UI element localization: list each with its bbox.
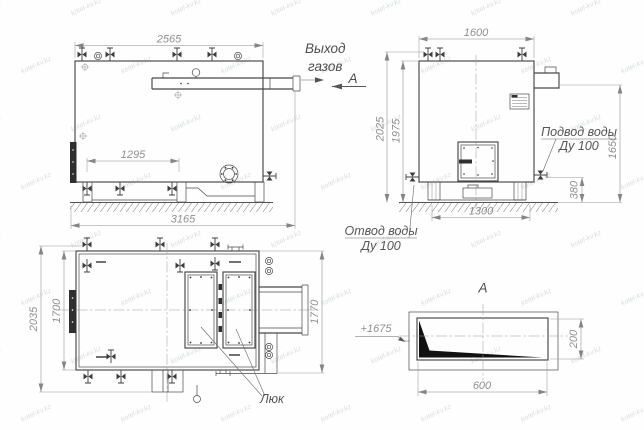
valve-icon: [436, 48, 445, 61]
boiler-body-plan: [76, 251, 259, 370]
elevation-mark: +1675: [355, 323, 410, 342]
flange-port-icon: [265, 267, 272, 274]
valve-icon: [176, 259, 185, 272]
gas-outlet-duct-side: [152, 69, 300, 91]
water-supply-label: Подвод воды Ду 100: [541, 125, 617, 171]
edge-valves-plan: [83, 238, 244, 383]
nameplate: [510, 94, 529, 109]
side-view: 2565 1295 3165 Выход газов А: [70, 34, 366, 230]
boiler-body-side: [75, 61, 263, 182]
flange-port-icon: [265, 257, 272, 264]
gas-outlet-duct-plan: [230, 285, 308, 374]
water-drain-text-2: Ду 100: [359, 239, 401, 253]
front-view: 1600 2025 1975 1650 380: [344, 27, 622, 253]
furnace-door: [458, 142, 498, 181]
flow-arrow-icon: [315, 77, 324, 82]
water-supply-text-1: Подвод воды: [541, 125, 617, 139]
flange-port-icon: [265, 351, 272, 358]
boiler-body-front: [419, 61, 534, 182]
valve-icon: [263, 172, 276, 181]
flange-port-icon: [94, 52, 101, 59]
valve-icon: [117, 370, 126, 383]
water-drain-label: Отвод воды Ду 100: [344, 185, 417, 253]
valve-icon: [156, 238, 165, 251]
center-mark-icon: [174, 91, 182, 99]
section-outer-casing: [409, 312, 558, 370]
dimension-380: 380: [548, 178, 584, 203]
section-width-dim-value: 600: [473, 380, 492, 392]
support-frame-front: [428, 182, 526, 200]
support-frame-side: [83, 182, 264, 202]
section-view: А 200 600 +1675: [355, 281, 584, 397]
water-supply-text-2: Ду 100: [557, 139, 599, 153]
valve-icon: [78, 48, 87, 61]
valve-icon: [84, 370, 93, 383]
flange-port-icon: [234, 52, 241, 59]
valve-icon: [106, 48, 115, 61]
depth-body-dim-value: 1700: [51, 298, 63, 323]
ground-side: [70, 203, 273, 213]
center-mark-icon: [79, 132, 87, 140]
section-mark-value: А: [347, 71, 357, 86]
flue-wedge-profile: [419, 321, 543, 358]
valve-icon: [208, 48, 217, 61]
valve-icon: [168, 370, 177, 383]
height-total-dim-value: 2025: [375, 116, 387, 142]
valve-icon: [83, 238, 92, 251]
depth-total-dim-value: 2035: [28, 306, 40, 332]
plan-view: 2035 1700 1770 Люк: [28, 238, 324, 406]
base-dim-value: 3165: [171, 214, 196, 226]
dimension-200: 200: [550, 319, 584, 359]
height-body-dim-value: 1975: [391, 118, 403, 143]
valve-icon: [211, 257, 220, 270]
dimension-1295: 1295: [87, 149, 179, 172]
base-width-dim-value: 1300: [469, 206, 494, 218]
valve-icon: [211, 238, 220, 251]
valve-icon: [534, 171, 547, 180]
water-drain-text-1: Отвод воды: [344, 224, 417, 238]
dimension-600: 600: [418, 362, 547, 396]
flange-port-icon: [265, 343, 272, 350]
drain-height-dim-value: 380: [569, 180, 581, 199]
hatch-hinges: [219, 284, 223, 332]
section-title-value: А: [477, 281, 487, 296]
side-valves-front: [406, 171, 547, 182]
top-valves-side: [78, 48, 242, 61]
valve-icon: [406, 173, 419, 182]
valve-icon: [83, 182, 92, 195]
bottom-valves-side: [83, 172, 277, 196]
drawing-canvas: kotel-kv.kzkotel-kv.kzkotel-kv.kzkotel-k…: [0, 0, 644, 430]
burner-flange-plan: [69, 290, 76, 333]
hatch-label: Люк: [201, 327, 285, 406]
pipe-fitting-icon: [192, 69, 200, 77]
valve-icon: [83, 259, 92, 272]
round-flange-side: [220, 165, 238, 183]
valve-icon: [107, 350, 116, 363]
drain-stub-icon: [194, 396, 201, 403]
boiler-technical-drawing: 2565 1295 3165 Выход газов А: [0, 0, 644, 430]
gas-outlet-text-2: газов: [308, 59, 342, 74]
depth-right-dim-value: 1770: [309, 299, 321, 324]
top-valves-front: [424, 48, 527, 61]
center-mark-icon: [81, 63, 89, 71]
valve-icon: [518, 48, 527, 61]
section-arrow-icon: [332, 84, 342, 90]
valve-icon: [424, 48, 433, 61]
front-width-dim-value: 1600: [464, 27, 489, 39]
burner-flange-side: [70, 142, 77, 183]
gas-outlet-text-1: Выход: [305, 41, 346, 56]
ground-front: [399, 203, 622, 213]
valve-icon: [173, 48, 182, 61]
gas-outlet-label: Выход газов: [301, 41, 346, 83]
side-width-dim-value: 2565: [156, 34, 182, 46]
door-handle-icon: [459, 160, 472, 164]
valve-icon: [116, 182, 125, 195]
ash-door: [463, 188, 492, 198]
elevation-mark-value: +1675: [361, 323, 393, 335]
hatch-label-value: Люк: [259, 392, 285, 406]
valve-span-dim-value: 1295: [121, 149, 146, 161]
gas-outlet-duct-front: [534, 67, 559, 88]
section-height-dim-value: 200: [568, 329, 580, 349]
valve-icon: [168, 182, 177, 195]
